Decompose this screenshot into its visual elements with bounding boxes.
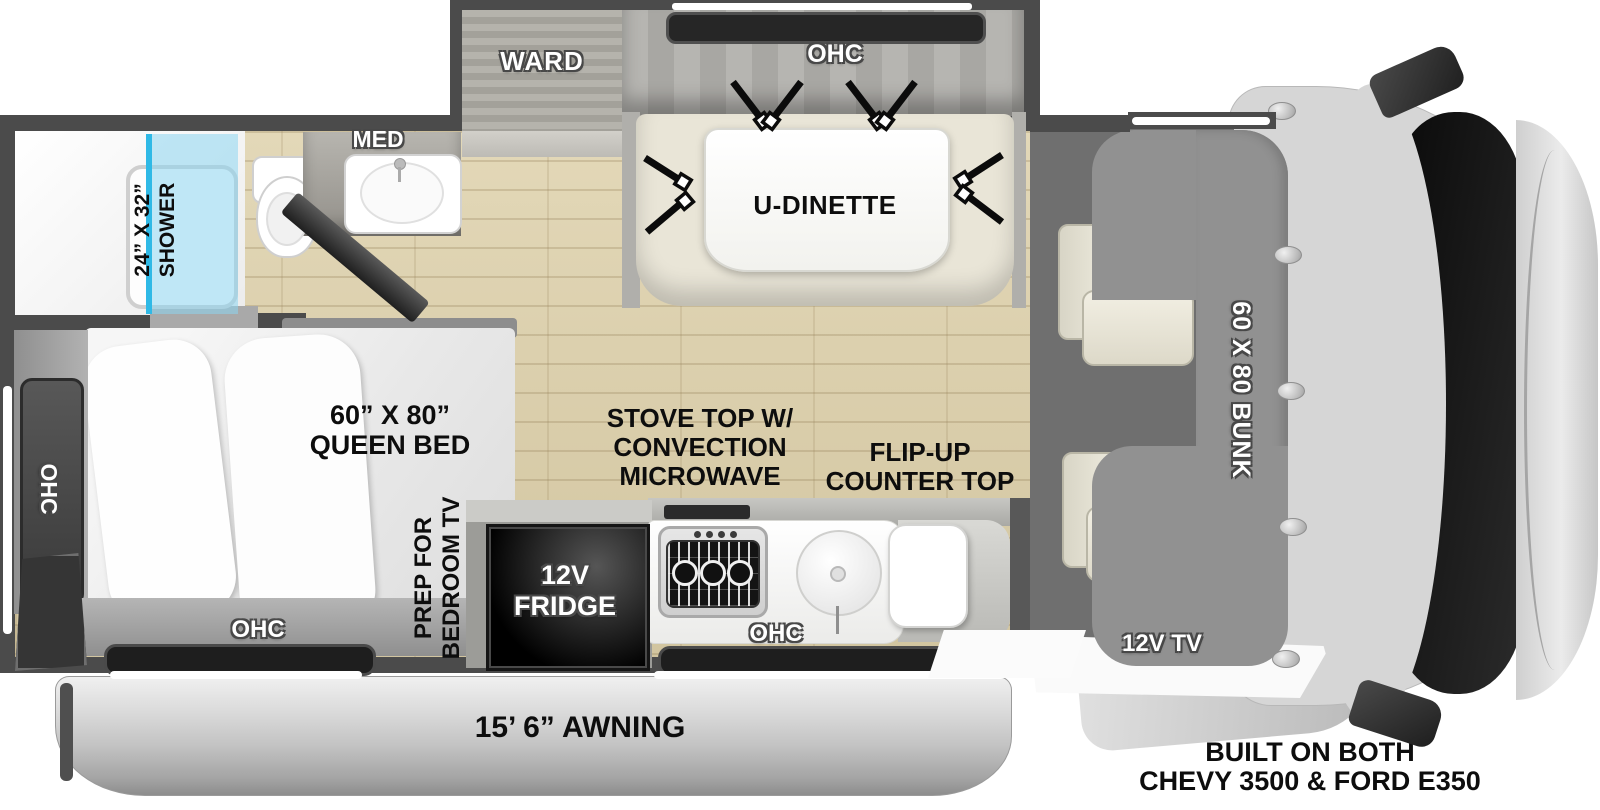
seatbelt-icon [618, 58, 1028, 308]
fridge-label: 12V FRIDGE [486, 560, 644, 622]
chassis-note: BUILT ON BOTH CHEVY 3500 & FORD E350 [1090, 738, 1530, 796]
awning-label: 15’ 6” AWNING [330, 711, 830, 745]
flip-counter-label-line2: COUNTER TOP [795, 467, 1045, 496]
corner-cabinet [15, 553, 87, 671]
med-label: MED [318, 126, 438, 153]
cowl-window-strip [1132, 117, 1270, 125]
driver-seat [1082, 290, 1194, 366]
tv-prep-label-line2: BEDROOM TV [438, 473, 466, 683]
bunk-label: 60 X 80 BUNK [1225, 280, 1255, 500]
stove-knob-icon [718, 531, 725, 538]
queen-bed-label-line2: QUEEN BED [275, 430, 505, 460]
queen-bed-label-line1: 60” X 80” [275, 400, 505, 430]
fridge-label-line2: FRIDGE [486, 591, 644, 622]
round-sink-icon [360, 162, 444, 224]
rv-floorplan-canvas: 15’ 6” AWNING BUILT ON BOTH CHEVY 3500 &… [0, 0, 1600, 810]
wardrobe-label: WARD [472, 46, 612, 77]
tv-prep-label: PREP FOR BEDROOM TV [410, 473, 466, 683]
tv-prep-label-line1: PREP FOR [410, 473, 438, 683]
bedroom-side-ohc-label: OHC [36, 447, 62, 531]
chassis-note-line2: CHEVY 3500 & FORD E350 [1090, 767, 1530, 796]
awning-end-cap [60, 683, 73, 781]
dinette-window-strip [672, 3, 972, 10]
flip-counter-label-line1: FLIP-UP [795, 438, 1045, 467]
bedroom-foot-ohc-label: OHC [196, 616, 320, 644]
stove-knob-icon [730, 531, 737, 538]
stove-label: STOVE TOP W/ CONVECTION MICROWAVE [575, 404, 825, 491]
dinette-ohc-label: OHC [770, 40, 900, 69]
shower-label: 24” X 32” SHOWER [130, 155, 184, 305]
stove-label-line1: STOVE TOP W/ [575, 404, 825, 433]
burner-icon [700, 560, 726, 586]
hood-seam-line [1524, 150, 1585, 670]
queen-bed-label: 60” X 80” QUEEN BED [275, 400, 505, 460]
rivet-icon [1279, 518, 1307, 536]
stove-label-line3: MICROWAVE [575, 462, 825, 491]
shower-label-line1: 24” X 32” [130, 155, 155, 305]
fridge-label-line1: 12V [486, 560, 644, 591]
bedroom-window-strip [110, 671, 362, 679]
flip-counter-label: FLIP-UP COUNTER TOP [795, 438, 1045, 496]
shower-label-line2: SHOWER [155, 155, 180, 305]
stove-label-line2: CONVECTION [575, 433, 825, 462]
flip-up-counter [888, 524, 968, 628]
stove-knob-icon [706, 531, 713, 538]
wardrobe-shelf [462, 131, 624, 157]
bedroom-window-strip [3, 386, 12, 634]
entry-landing [928, 630, 1086, 678]
burner-icon [727, 560, 753, 586]
cab-tv-label: 12V TV [1102, 630, 1222, 658]
sink-drain-icon [830, 566, 846, 582]
stove-knob-icon [694, 531, 701, 538]
rivet-icon [1277, 382, 1305, 400]
rivet-icon [1274, 246, 1302, 264]
pillow [222, 332, 378, 639]
dinette-label: U-DINETTE [714, 190, 936, 221]
kitchen-ohc-label: OHC [714, 620, 838, 648]
counter-vent [664, 505, 750, 519]
rivet-icon [1272, 650, 1300, 668]
burner-icon [672, 560, 698, 586]
cab-cowl [1298, 84, 1446, 724]
faucet-icon [398, 167, 401, 182]
